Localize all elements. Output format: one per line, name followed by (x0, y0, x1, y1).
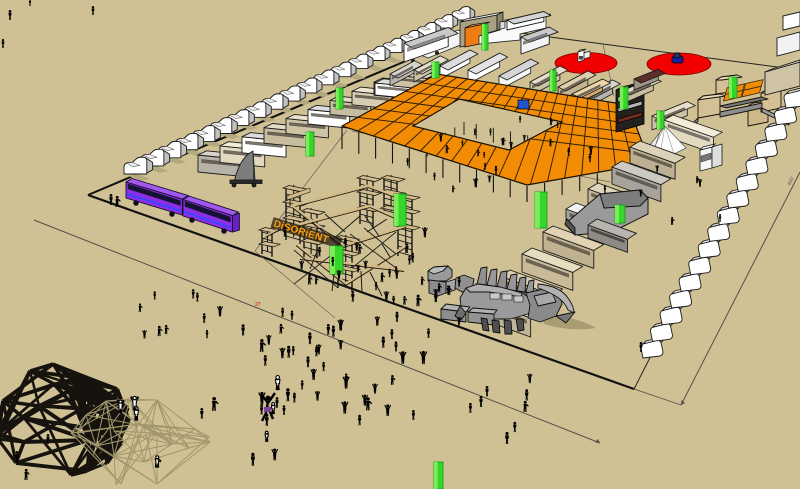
svg-text:27: 27 (255, 302, 261, 308)
